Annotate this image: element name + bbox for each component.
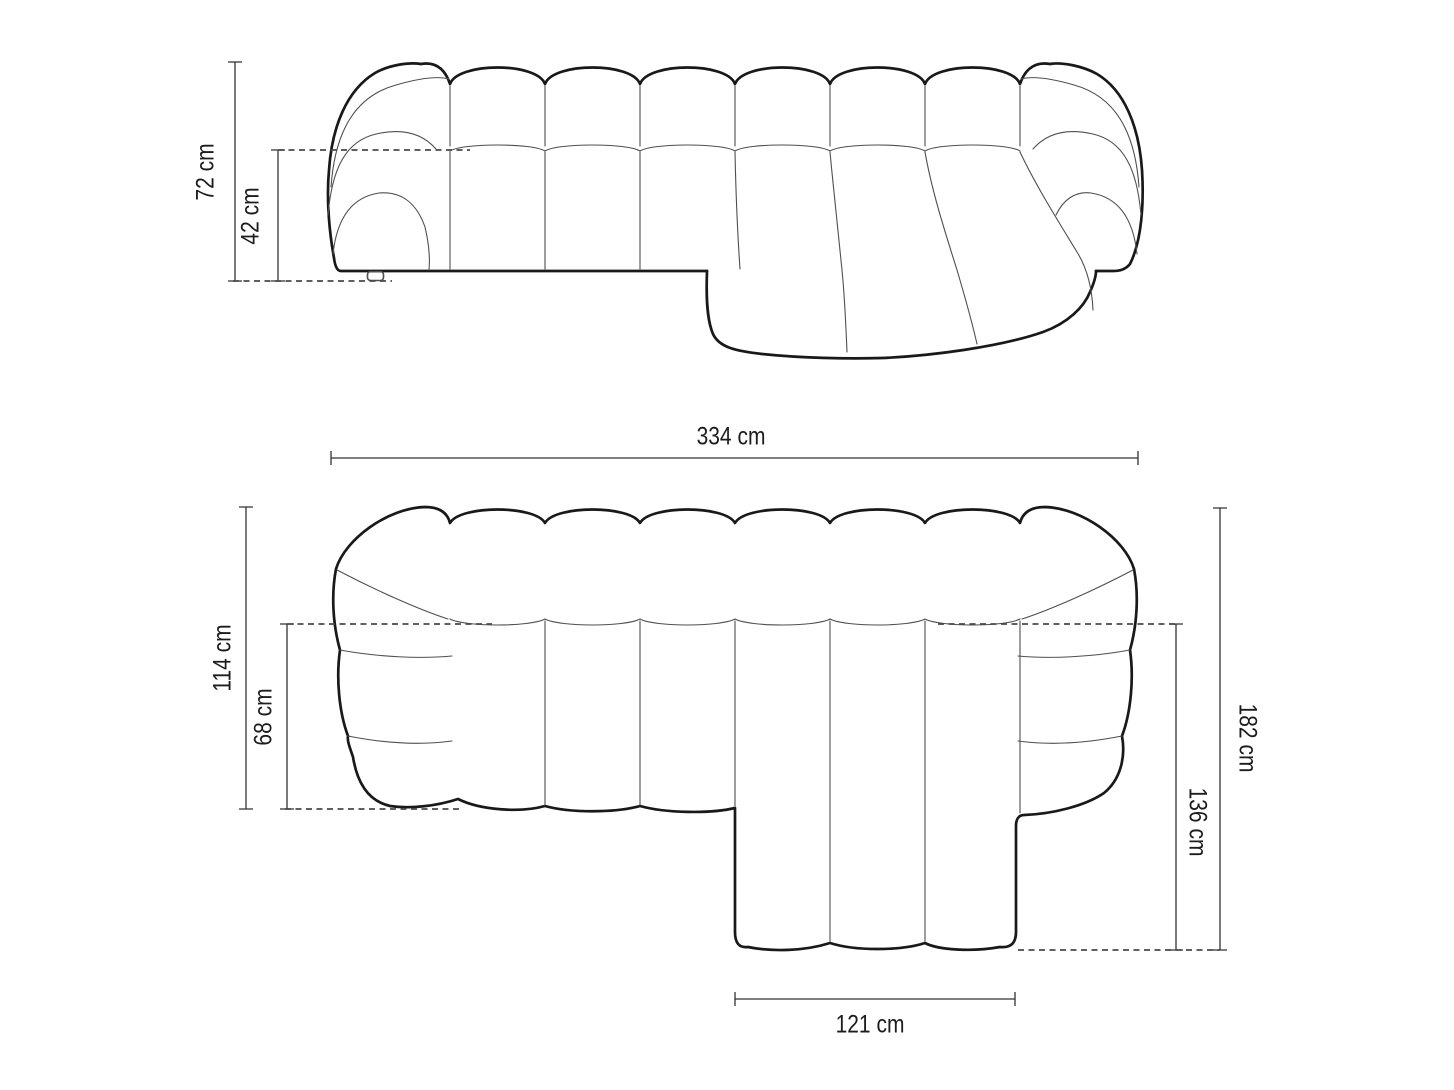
front-view-drawing — [328, 63, 1143, 358]
top-seat-depth-label: 68 cm — [250, 688, 279, 745]
top-depth-label: 114 cm — [209, 624, 238, 691]
front-height-label: 72 cm — [192, 143, 221, 200]
top-chaise-depth-label: 136 cm — [1183, 788, 1212, 857]
front-seat-seams — [450, 152, 1093, 352]
dim-line-334 — [331, 451, 1138, 465]
dimension-lines — [228, 62, 1227, 1006]
dim-line-72 — [228, 62, 242, 281]
front-seat-height-label: 42 cm — [237, 187, 266, 244]
sofa-foot — [368, 272, 384, 281]
dim-line-182 — [1213, 508, 1227, 950]
dim-line-136 — [1169, 624, 1183, 950]
top-corner-seams — [337, 570, 1133, 619]
dim-line-121 — [735, 992, 1015, 1006]
dim-line-42 — [271, 150, 285, 281]
front-right-arm-arcs — [1021, 78, 1141, 254]
front-chaise-outline — [707, 271, 1096, 358]
dim-line-114 — [239, 507, 253, 809]
top-view-drawing — [333, 507, 1137, 950]
sofa-dimension-diagram: 72 cm 42 cm 334 cm 114 cm 68 cm 182 cm 1… — [0, 0, 1454, 1090]
top-chaise-width-label: 121 cm — [836, 1011, 905, 1040]
top-cushion-seams — [545, 621, 1020, 941]
top-total-depth-label: 182 cm — [1233, 704, 1262, 773]
dim-line-68 — [280, 624, 294, 809]
front-width-label: 334 cm — [697, 423, 766, 452]
front-back-seams — [450, 86, 1020, 146]
